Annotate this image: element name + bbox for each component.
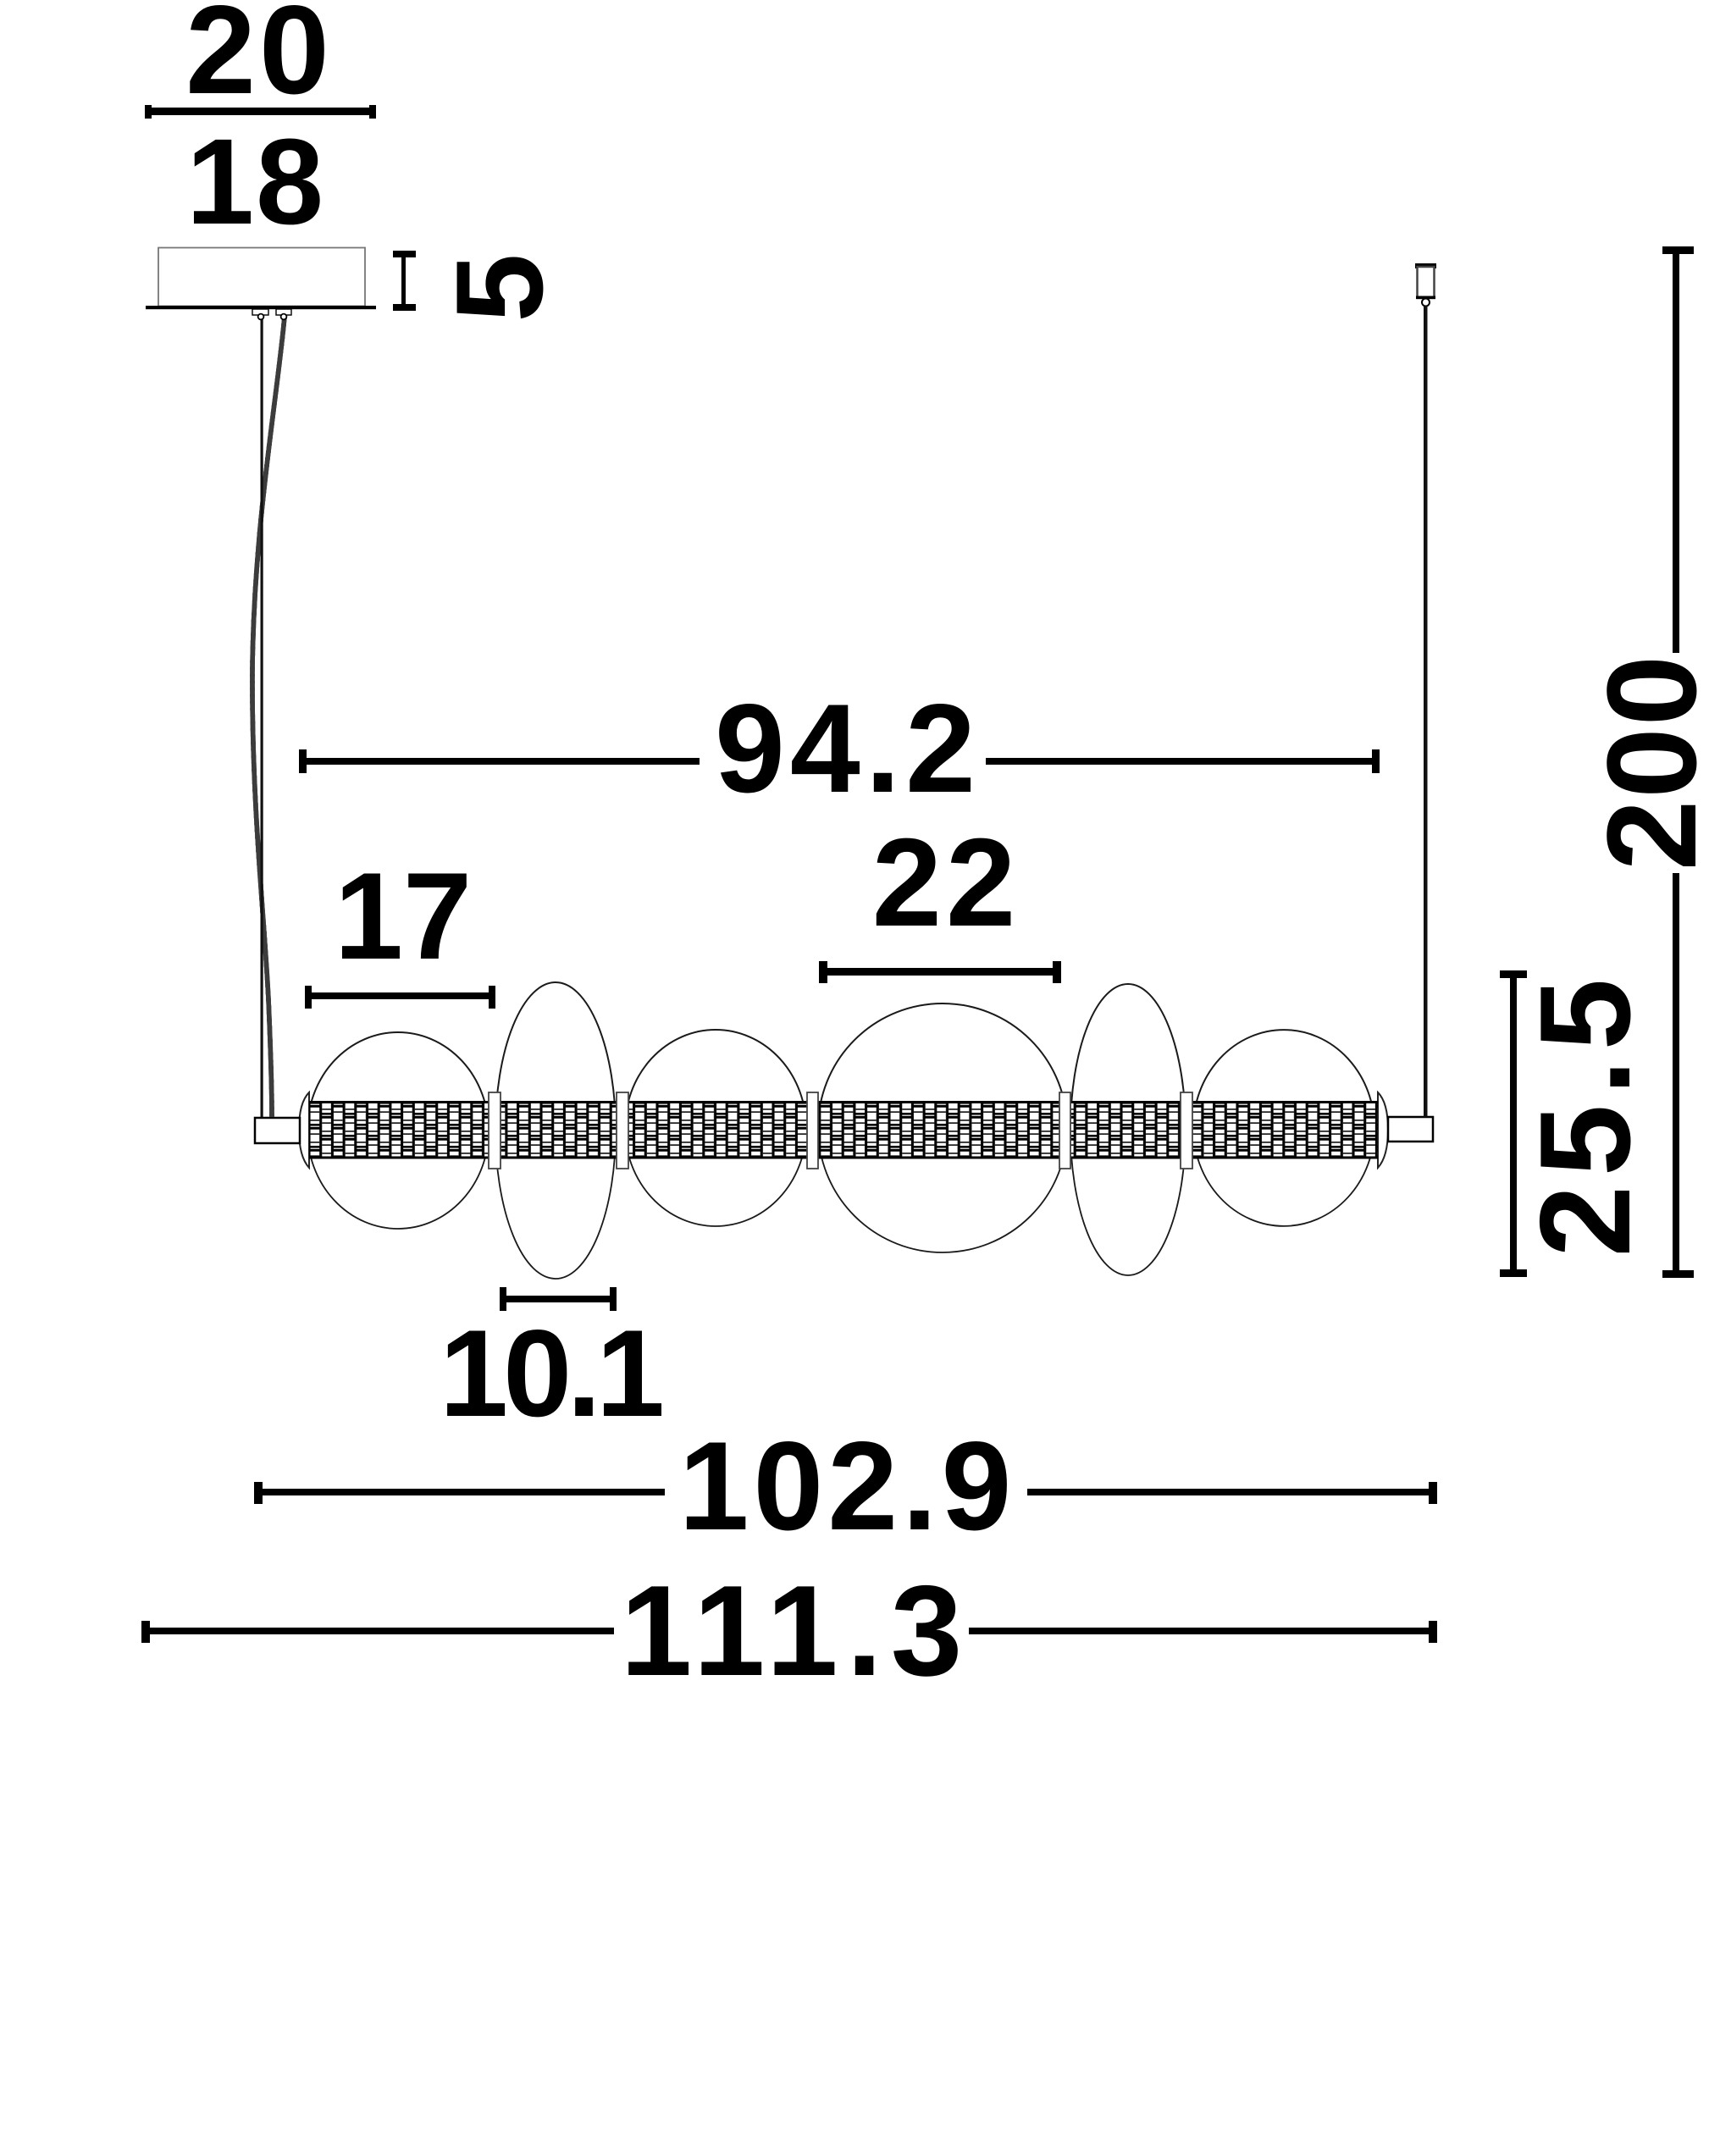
svg-text:5: 5	[430, 253, 568, 322]
svg-text:111.3: 111.3	[621, 1559, 971, 1703]
svg-text:200: 200	[1580, 654, 1709, 871]
svg-text:102.9: 102.9	[679, 1415, 1016, 1556]
svg-text:22: 22	[872, 813, 1020, 953]
svg-text:10.1: 10.1	[440, 1304, 662, 1442]
svg-text:25.5: 25.5	[1513, 970, 1657, 1258]
svg-text:17: 17	[335, 847, 472, 985]
svg-text:20: 20	[185, 0, 333, 120]
svg-text:94.2: 94.2	[715, 677, 981, 819]
svg-text:18: 18	[186, 113, 325, 250]
